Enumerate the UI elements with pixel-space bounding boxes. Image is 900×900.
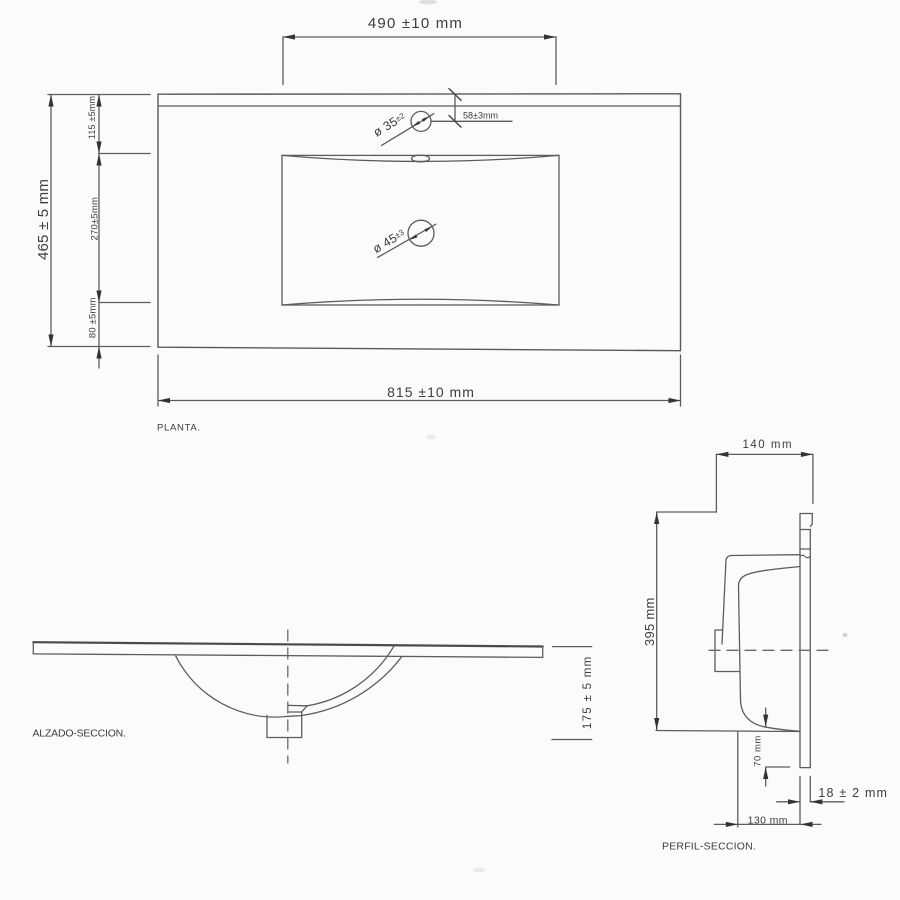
svg-text:270±5mm: 270±5mm [90, 197, 101, 241]
svg-text:PLANTA.: PLANTA. [157, 422, 201, 433]
svg-text:58±3mm: 58±3mm [463, 110, 498, 120]
svg-text:18 ± 2 mm: 18 ± 2 mm [818, 786, 888, 800]
svg-text:70 mm: 70 mm [753, 735, 764, 767]
svg-text:395 mm: 395 mm [642, 597, 657, 646]
svg-text:115 ±5mm: 115 ±5mm [87, 96, 97, 139]
svg-text:130 mm: 130 mm [748, 814, 788, 826]
svg-text:175 ± 5 mm: 175 ± 5 mm [582, 655, 594, 729]
svg-text:ALZADO-SECCION.: ALZADO-SECCION. [33, 728, 126, 740]
svg-text:80 ±5mm: 80 ±5mm [88, 297, 99, 338]
svg-text:140 mm: 140 mm [743, 439, 794, 451]
svg-text:ø 35±2: ø 35±2 [371, 109, 409, 139]
svg-text:490 ±10 mm: 490 ±10 mm [368, 15, 463, 32]
svg-text:PERFIL-SECCION.: PERFIL-SECCION. [662, 841, 756, 853]
svg-text:465 ± 5 mm: 465 ± 5 mm [35, 179, 52, 260]
svg-text:815 ±10 mm: 815 ±10 mm [387, 384, 475, 400]
